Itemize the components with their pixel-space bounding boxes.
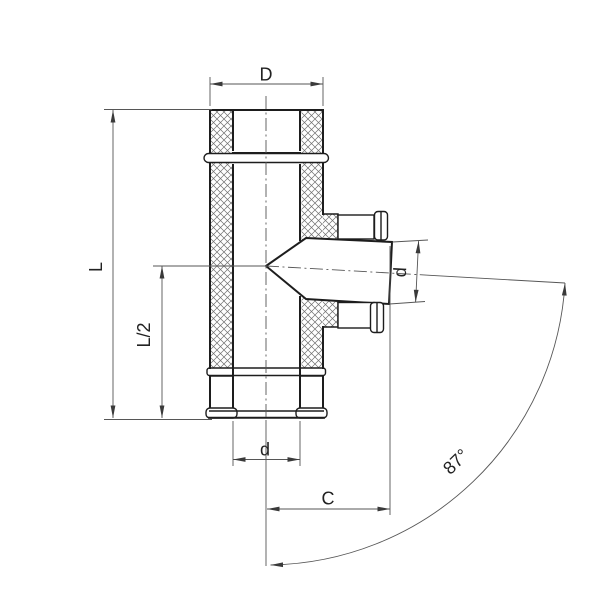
arrow-d-left: [233, 457, 246, 462]
dimension-D: D: [210, 65, 323, 107]
dim-label-d-bottom: d: [260, 440, 270, 460]
arrow-L-top: [111, 110, 116, 123]
tee-fitting-technical-drawing: D L L/2 d C d 87°: [0, 0, 600, 600]
drawing-canvas: D L L/2 d C d 87°: [0, 0, 600, 600]
branch-outlet: [266, 238, 392, 304]
arrow-d-right: [288, 457, 301, 462]
dimension-L-half: L/2: [134, 266, 267, 418]
arrow-L2-bottom: [160, 406, 165, 419]
dimension-d-branch: d: [390, 240, 429, 304]
dim-label-L-half: L/2: [134, 322, 154, 347]
arrow-arc-top: [562, 283, 568, 296]
arrow-D-right: [311, 82, 324, 87]
dimension-L: L: [86, 110, 212, 420]
arrow-C-left: [267, 507, 280, 512]
dim-label-L: L: [86, 262, 106, 272]
arrow-D-left: [210, 82, 223, 87]
dimension-d-bottom: d: [233, 421, 300, 466]
arrow-L-bottom: [111, 406, 116, 419]
dim-label-C: C: [322, 489, 335, 509]
arrow-C-right: [378, 507, 391, 512]
bottom-bead-left: [206, 408, 237, 418]
bottom-bead-right: [296, 408, 327, 418]
dim-label-D: D: [260, 65, 273, 85]
arrow-L2-top: [160, 266, 165, 279]
arrow-arc-bottom: [270, 562, 283, 567]
arrow-d-branch-top: [416, 241, 421, 254]
dim-label-d-branch: d: [390, 267, 410, 278]
arrow-d-branch-bottom: [413, 290, 418, 303]
bottom-end: [206, 368, 327, 418]
dim-label-angle: 87°: [439, 445, 472, 478]
